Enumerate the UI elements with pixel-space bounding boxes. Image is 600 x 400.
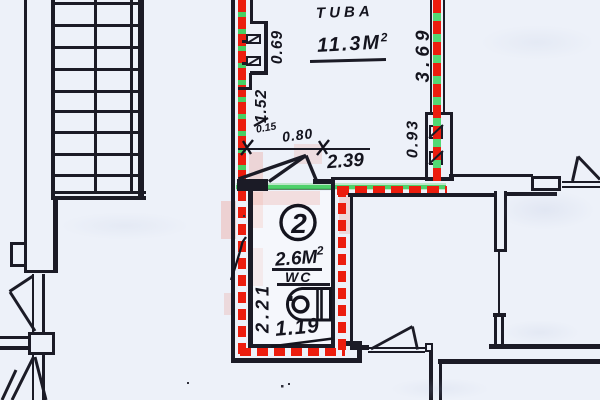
svg-text:2: 2 <box>290 208 307 239</box>
